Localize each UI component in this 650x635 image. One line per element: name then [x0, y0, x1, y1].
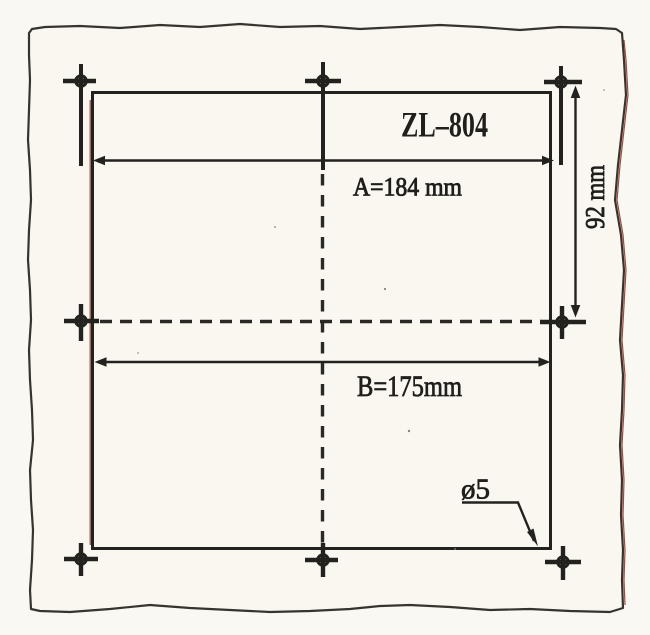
svg-text:92 mm: 92 mm	[580, 165, 610, 229]
svg-text:A=184 mm: A=184 mm	[353, 173, 462, 202]
svg-text:ø5: ø5	[461, 474, 490, 506]
svg-text:B=175mm: B=175mm	[357, 370, 462, 403]
svg-text:ZL–804: ZL–804	[401, 105, 488, 145]
